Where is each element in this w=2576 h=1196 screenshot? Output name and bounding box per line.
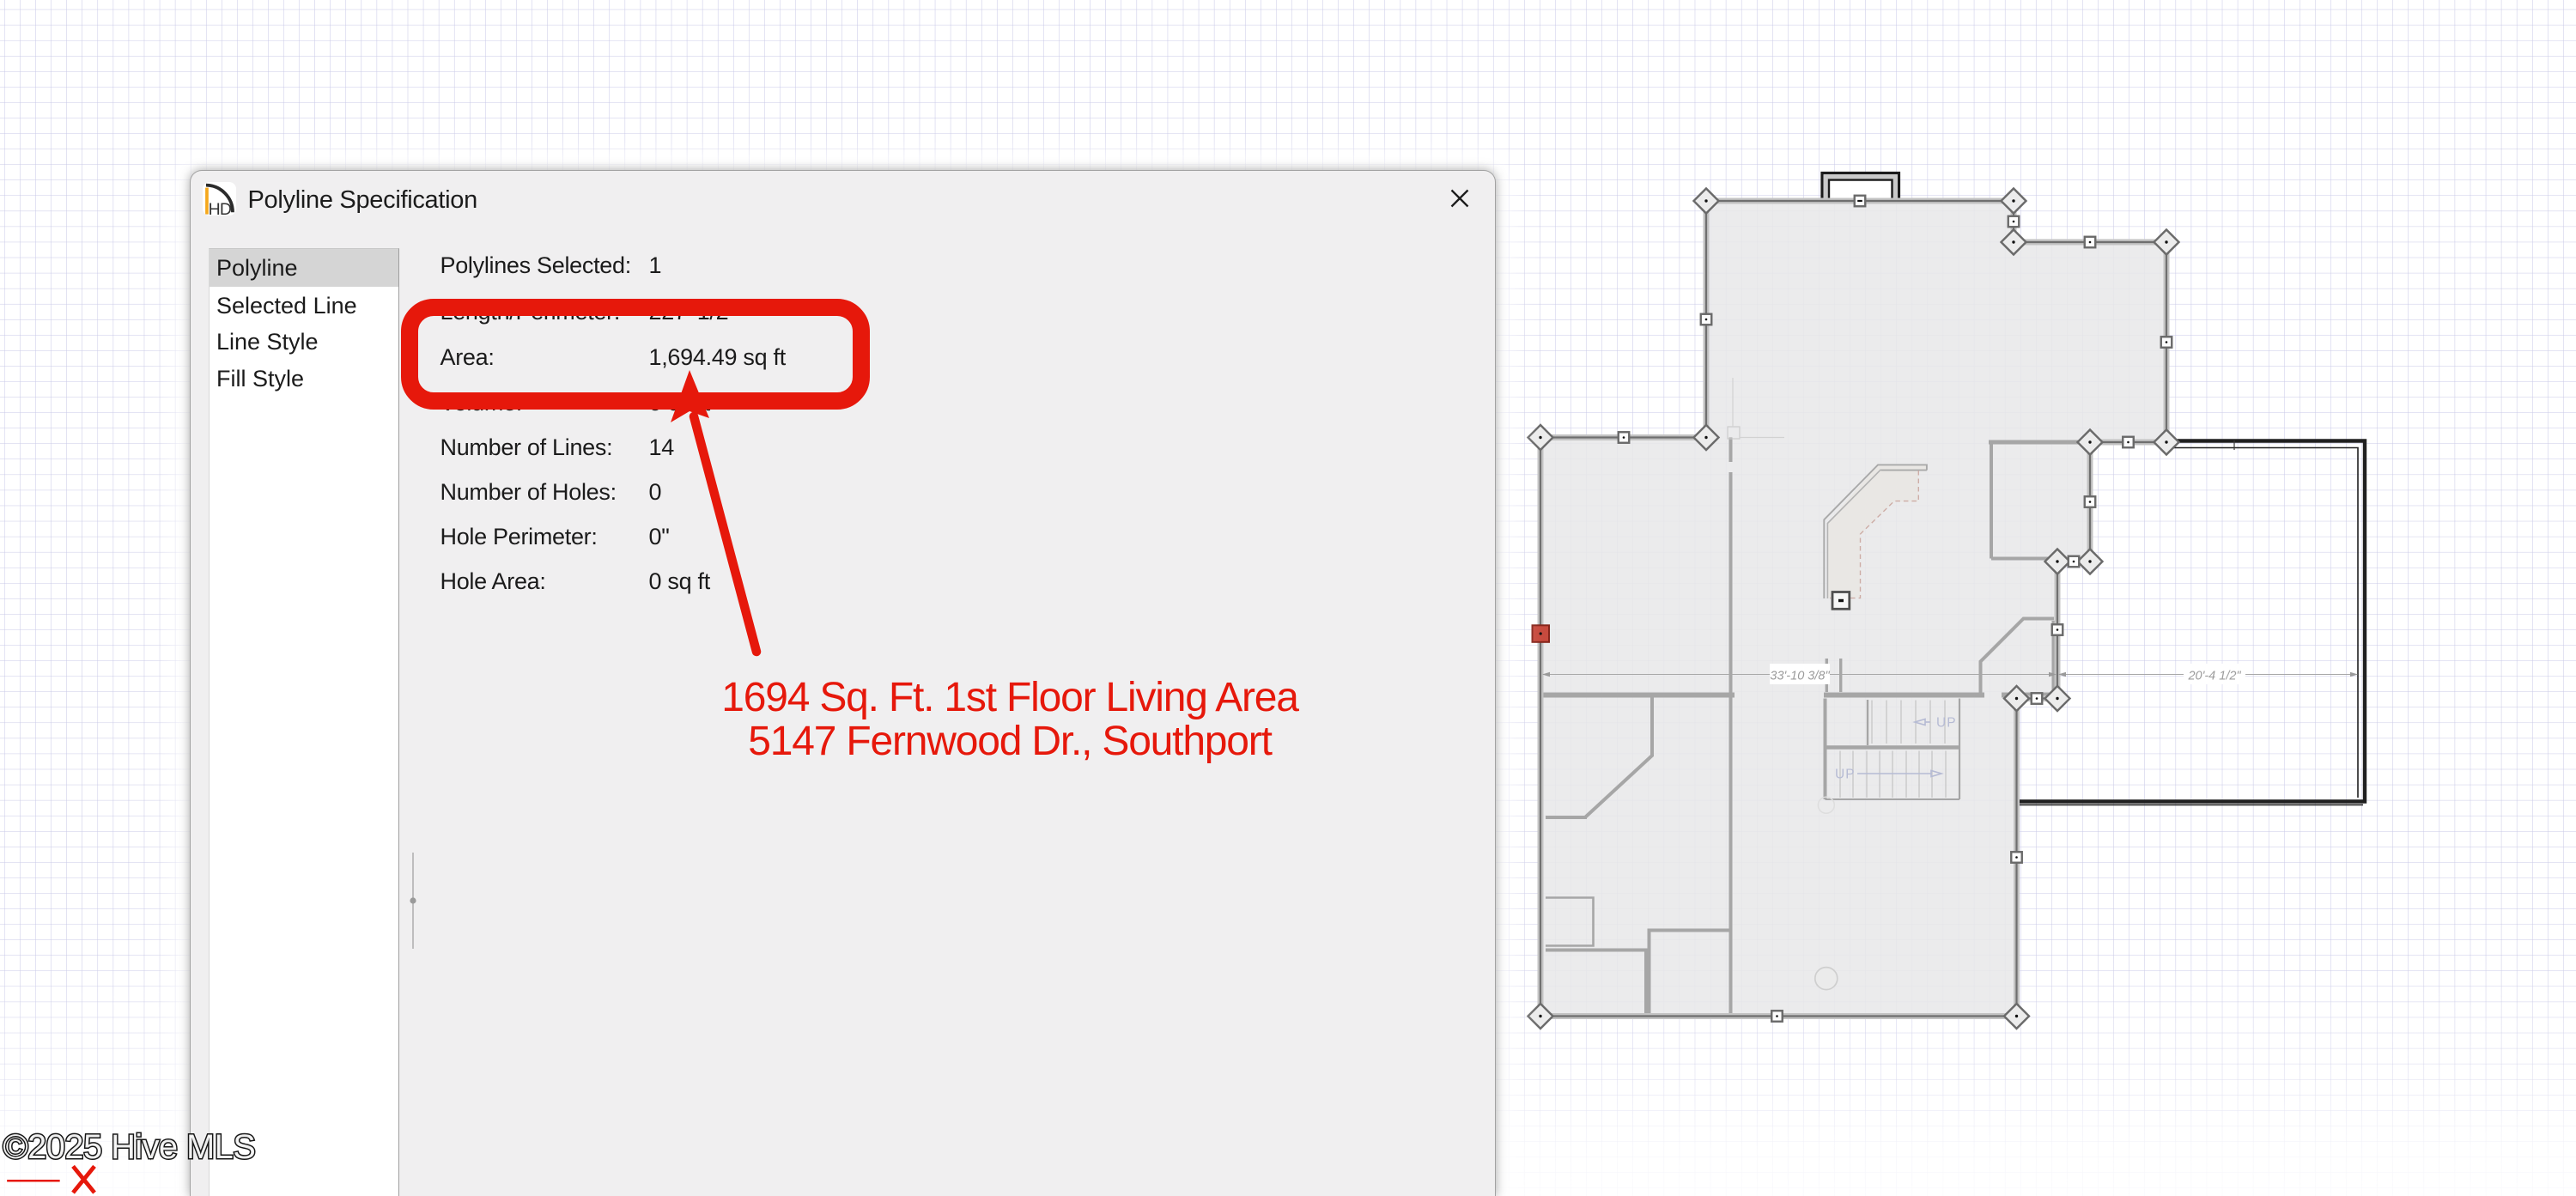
svg-text:HD: HD: [208, 200, 231, 216]
svg-text:20'-4 1/2": 20'-4 1/2": [2187, 670, 2241, 683]
svg-text:33'-10 3/8": 33'-10 3/8": [1770, 670, 1830, 683]
svg-text:UP: UP: [1936, 716, 1957, 731]
svg-text:©2025 Hive MLS: ©2025 Hive MLS: [3, 1128, 255, 1166]
svg-text:UP: UP: [1835, 768, 1856, 782]
